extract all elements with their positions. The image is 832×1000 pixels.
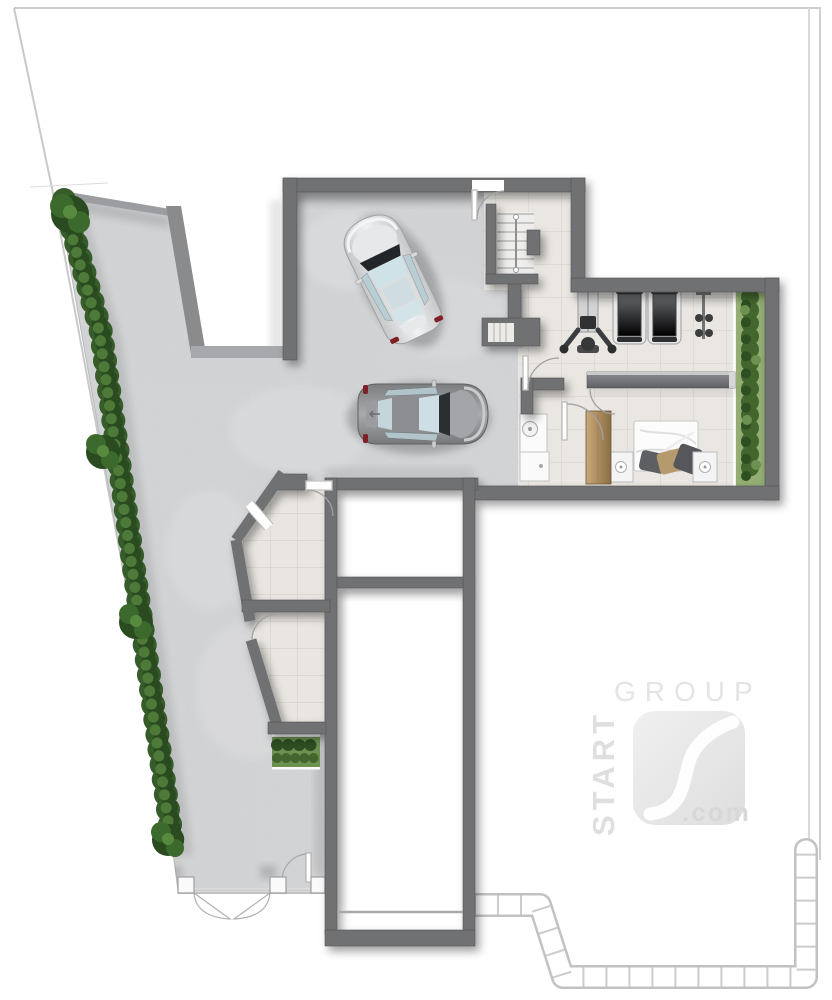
wall-shadow <box>270 200 282 352</box>
wall-south-gym <box>466 486 779 500</box>
white-room-long <box>337 588 463 911</box>
gate-pillar <box>311 877 325 893</box>
bathroom-fixtures <box>520 414 549 481</box>
stair-wall-stub <box>527 230 540 255</box>
perimeter-block-wall <box>474 850 806 977</box>
pedestrian-gate-leaf <box>306 853 311 882</box>
floorplan-page: GROUP START .com <box>0 0 832 1000</box>
car-parked-garage <box>347 380 491 454</box>
courtyard-planter <box>272 734 320 770</box>
white-room-band <box>337 914 463 930</box>
nightstand <box>693 452 717 482</box>
wall-north-gym <box>571 278 779 292</box>
stair-wall <box>486 274 538 284</box>
wall-room-bottom <box>325 930 475 946</box>
lower-staircase <box>488 323 514 342</box>
wall-east-gym <box>765 278 779 500</box>
wall-north-main <box>283 178 585 192</box>
toilet-unit <box>520 452 549 481</box>
gate-door-arc <box>234 893 270 919</box>
partition-counter <box>587 372 735 394</box>
stair-wall <box>486 204 496 284</box>
treadmill <box>613 286 646 344</box>
gym-garden-strip <box>733 290 765 486</box>
gate-pillar <box>270 877 286 893</box>
white-room-upper <box>337 490 463 577</box>
door-gap-room-a <box>306 481 332 490</box>
nightstand <box>609 452 633 482</box>
floorplan-drawing <box>0 0 832 1000</box>
wall-room-top <box>325 478 478 490</box>
wall-west-main <box>283 178 297 360</box>
door-leaf <box>472 190 477 220</box>
wall-room-divider <box>337 577 463 588</box>
gate-door-arc <box>194 893 230 919</box>
wall-room-b-bottom <box>268 722 326 734</box>
treadmill <box>648 286 681 344</box>
door-leaf <box>562 402 567 440</box>
door-leaf <box>523 356 528 390</box>
wall-east-main <box>571 178 585 292</box>
gate-pillar <box>178 877 194 893</box>
wall-rooms-divider <box>242 600 330 612</box>
wall-room-right <box>463 478 475 930</box>
wall-room-left <box>325 478 337 934</box>
